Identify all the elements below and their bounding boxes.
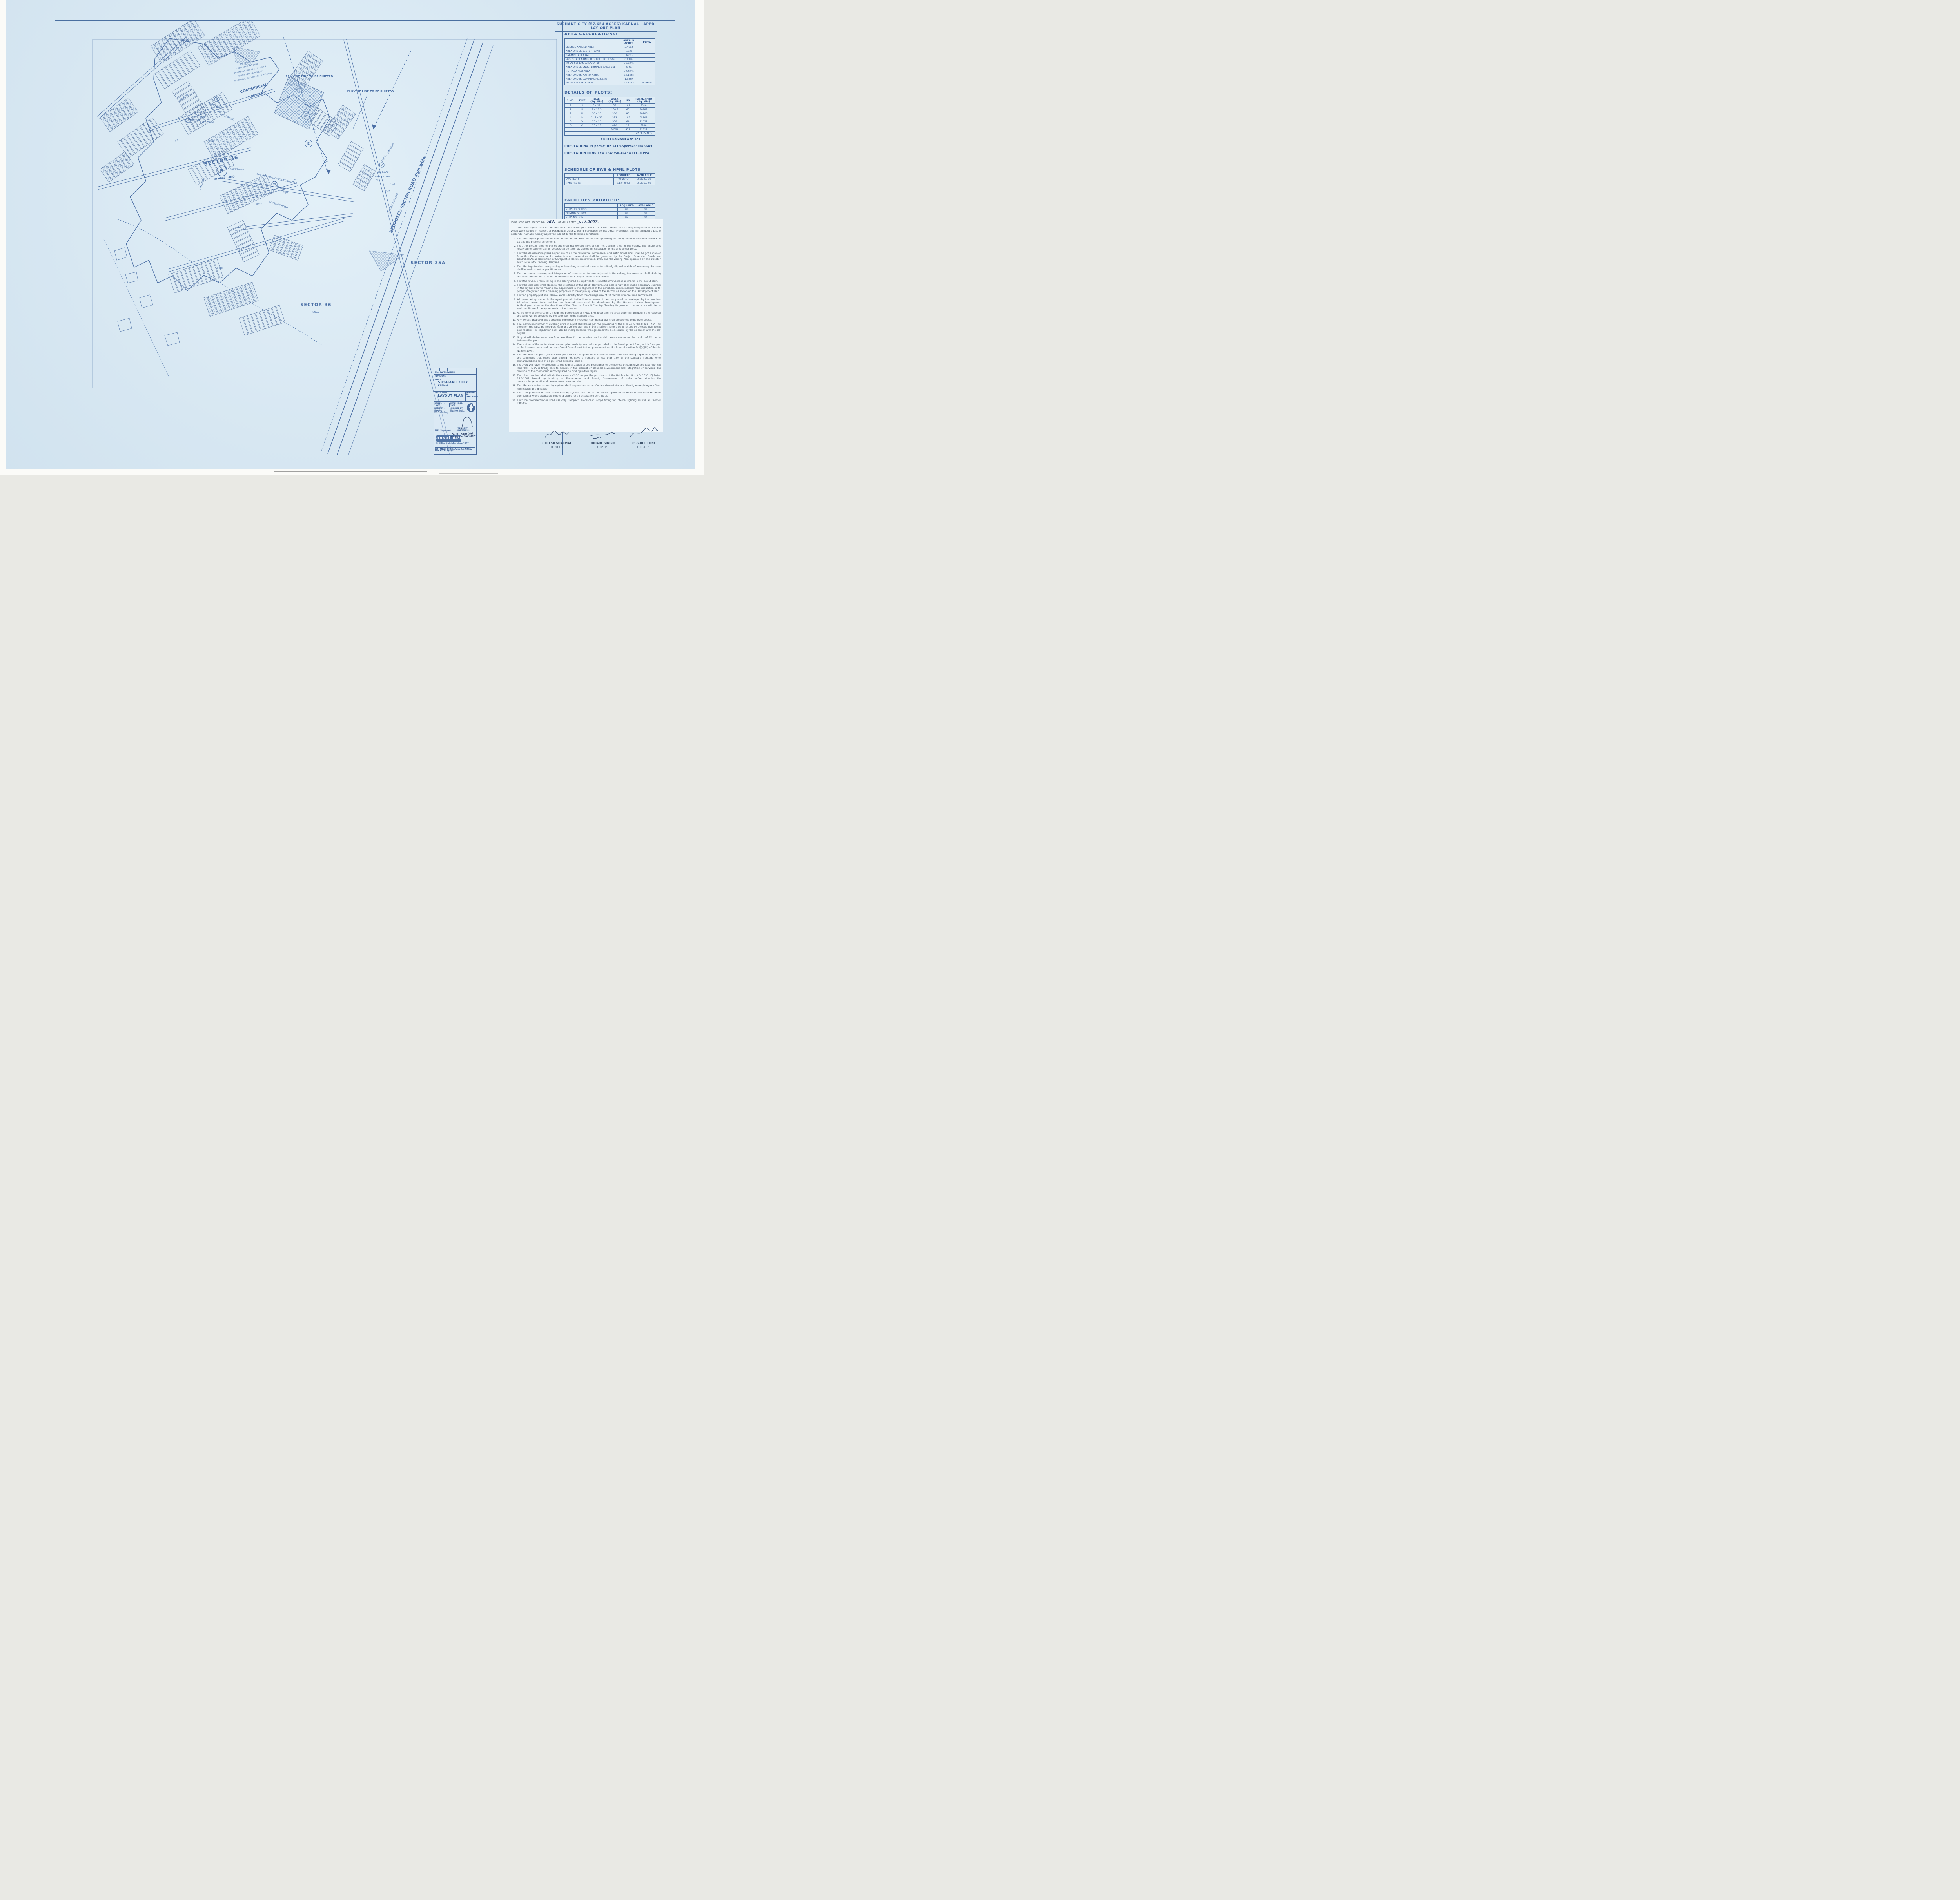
signatory-name: (S.S.DHILLON) <box>620 441 667 445</box>
table-row: EWS PLOTS90(20%)102(22.56%) <box>565 178 655 181</box>
table-cell: 1.639 <box>619 49 639 53</box>
plot-blocks <box>97 21 452 454</box>
table-cell <box>639 49 655 53</box>
table-cell: 253 <box>606 116 624 120</box>
licence-number-handwritten: 264. <box>546 220 555 225</box>
table-cell: 49.92% <box>639 81 655 85</box>
licence-date-handwritten: 3-12-2007. <box>577 220 599 225</box>
table-cell <box>639 57 655 61</box>
condition-item: That the rain water harvesting system sh… <box>517 384 661 391</box>
table-cell: BALANCE AREA (A) <box>565 53 619 57</box>
map-label: 8629 <box>209 140 214 143</box>
table-cell <box>639 65 655 69</box>
col-header: SIZE (Sq. Mts) <box>588 97 606 104</box>
map-label: 1.98 ACS <box>247 92 264 100</box>
table-cell: 01 <box>618 212 636 216</box>
signature-scribble <box>458 415 474 431</box>
licence-mid: of 2007 dated <box>558 221 576 224</box>
licence-line: To be read with licence No. 264. of 2007… <box>511 220 661 225</box>
table-cell: 1 <box>565 104 577 108</box>
table-cell <box>639 69 655 73</box>
table-cell: 11.5 x 22 <box>588 116 606 120</box>
table-row: TOTAL SALEABLE AREA25.175249.92% <box>565 81 655 85</box>
approval-conditions: To be read with licence No. 264. of 2007… <box>509 219 663 432</box>
table-cell: 5 <box>565 120 577 123</box>
col-header: TOTAL AREA (Sq. Mts) <box>632 97 655 104</box>
drawing-no-label: DRAWING NO. <box>465 392 476 396</box>
map-label: U.D. <box>174 138 180 143</box>
col-header: TYPE <box>577 97 588 104</box>
table-cell: 166.5 <box>606 108 624 112</box>
area-calculations-title: AREA CALCULATIONS: <box>564 32 655 36</box>
map-label: SECTOR-36 <box>300 302 332 307</box>
table-cell: 50.4245 <box>619 69 639 73</box>
scan-artifact <box>274 471 427 472</box>
table-row: 50% OF AREA UNDER G. BLT.,ETC. 1.6390.81… <box>565 57 655 61</box>
map-label: F <box>220 167 224 174</box>
col-header: S.NO. <box>565 97 577 104</box>
table-cell: TOTAL SCHEME AREA (A+B) <box>565 61 619 65</box>
table-cell <box>624 132 632 136</box>
map-label: SECTOR-36 <box>203 154 239 167</box>
map-label: 8612 <box>312 310 319 314</box>
table-cell: 90(20%) <box>614 178 633 181</box>
map-label: E <box>307 142 310 146</box>
signature-scribble <box>628 426 659 440</box>
authorised-signatory-stamp: N. R. SEHGAL Authorised Signatory <box>447 432 479 439</box>
map-label: 8/2 <box>376 179 380 181</box>
map-label: II <box>187 119 189 122</box>
dealt-by-sub: (ARCHITECT & URBAN PLANNER) <box>434 411 449 414</box>
col-header <box>565 39 619 45</box>
table-cell: 19800 <box>632 112 655 116</box>
ews-npnl-title: SCHEDULE OF EWS & NPNL PLOTS <box>564 168 655 172</box>
table-row: 5V13 x 263386421632 <box>565 120 655 123</box>
table-row: 3III10 x 202009919800 <box>565 112 655 116</box>
condition-item: All green belts provided in the layout p… <box>517 298 661 311</box>
table-cell: 25.1752 <box>619 81 639 85</box>
col-header <box>565 174 614 178</box>
col-header: PERC. <box>639 39 655 45</box>
map-label: VI <box>273 183 276 186</box>
table-cell: 165(36.50%) <box>633 181 655 185</box>
condition-item: At the time of demarcation, if required … <box>517 312 661 318</box>
condition-item: No plot will derive an access from less … <box>517 336 661 343</box>
ews-npnl-table: REQUIRED AVAILABLE EWS PLOTS90(20%)102(2… <box>564 173 655 185</box>
company-address: 115, ANSAL BHAWAN, 16-K.G.MARG, NEW DELH… <box>435 447 475 452</box>
table-cell: 66 <box>624 108 632 112</box>
signatory-title: CTP(Hr.) <box>579 446 626 449</box>
table-cell <box>588 132 606 136</box>
logo-tagline: Building lifestyles since 1967 <box>436 442 469 445</box>
table-cell: 55 <box>606 104 624 108</box>
condition-item: That you will have no objection to the r… <box>517 364 661 373</box>
revenue-rasta <box>118 219 321 345</box>
map-label: 12M ROAD <box>199 178 205 190</box>
scale-value: SCALE - 1 : 1000 <box>434 403 450 407</box>
table-cell: 23.1885 <box>619 73 639 77</box>
table-cell: V <box>577 120 588 123</box>
table-cell: 7980 <box>632 123 655 127</box>
signature-scribble <box>589 430 617 440</box>
table-cell <box>565 128 577 132</box>
table-cell: 200 <box>606 112 624 116</box>
map-label: 8622 <box>256 203 262 206</box>
table-cell <box>606 132 624 136</box>
table-cell <box>577 128 588 132</box>
table-cell: 102 <box>624 116 632 120</box>
table-cell: 452 <box>624 128 632 132</box>
project-city: KARNAL <box>434 384 476 387</box>
table-cell: 91817 <box>632 128 655 132</box>
condition-item: That no property/plot shall derive acces… <box>517 294 661 297</box>
population-density-line: POPULATION DENSITY= 5643/50.4245=111.91P… <box>564 151 656 155</box>
table-cell <box>639 77 655 81</box>
conditions-intro: That this layout plan for an area of 57.… <box>511 227 661 236</box>
table-row: TOTAL SCHEME AREA (A+B)56.8345 <box>565 61 655 65</box>
map-label: 8502 <box>238 136 243 138</box>
drawing-no: SANC./KAR/1 <box>465 396 476 398</box>
table-cell: AREA UNDER SECTOR ROAD <box>565 49 619 53</box>
sheet-title: LAYOUT PLAN <box>434 394 465 397</box>
map-label: 8630 <box>227 142 232 144</box>
map-label: V <box>381 163 383 167</box>
col-header: REQUIRED <box>618 204 636 208</box>
table-row: PRIMARY SCHOOL0101 <box>565 212 655 216</box>
condition-item: That this layout plan shall be read in c… <box>517 237 661 244</box>
signatory-title: DTCP(Hr.) <box>620 446 667 449</box>
map-label: TEMP. ENTRANCE <box>374 176 393 178</box>
map-label: 15M ROAD <box>200 120 214 123</box>
col-header: NO <box>624 97 632 104</box>
table-cell: II <box>577 108 588 112</box>
layout-plan-map: INCLUDING:-2 ATM- 12 SQ MTS EACH2 BEAUTY… <box>55 21 562 455</box>
table-cell: 22.6885 ACS <box>632 132 655 136</box>
area-calculations-table: AREA IN ACRES PERC. LICENCE APPLIED AREA… <box>564 38 655 85</box>
table-cell: 10989 <box>632 108 655 112</box>
table-cell: NPNL PLOTS <box>565 181 614 185</box>
table-cell: 13 x 26 <box>588 120 606 123</box>
table-row: AREA UNDER UNDETERMINED (U.D.) USE6.41 <box>565 65 655 69</box>
conditions-list: That this layout plan shall be read in c… <box>511 237 661 405</box>
table-cell <box>577 132 588 136</box>
condition-item: That the plotted area of the colony shal… <box>517 245 661 251</box>
table-cell: 102(22.56%) <box>633 178 655 181</box>
table-cell: AREA UNDER PLOTS/ N.HM. <box>565 73 619 77</box>
map-label: 6 NOS. <box>381 154 387 162</box>
map-label: 8610 <box>217 267 223 270</box>
scan-artifact <box>439 473 498 474</box>
table-cell: AREA UNDER COMMERCIAL 3.93% <box>565 77 619 81</box>
map-label: 15M ROAD <box>221 113 235 121</box>
table-cell: 4 <box>565 116 577 120</box>
sgm-label: SGM (Sanctions) <box>435 430 451 431</box>
table-row: NURSERY SCHOOL0101 <box>565 208 655 212</box>
table-cell <box>639 53 655 57</box>
svg-text:N: N <box>473 404 475 407</box>
table-cell: 01 <box>618 208 636 212</box>
table-cell: 19 <box>624 123 632 127</box>
table-cell: NURSING HOME <box>565 216 618 219</box>
date-value: DATE: 22-11-2007 <box>450 403 465 407</box>
table-row: AREA UNDER COMMERCIAL 3.93%1.9867 <box>565 77 655 81</box>
table-cell: 1.9867 <box>619 77 639 81</box>
table-row: LICENCE APPLIED AREA57.654 <box>565 45 655 49</box>
table-cell: 64 <box>624 120 632 123</box>
signature-ctp: (DHARE SINGH) CTP(Hr.) <box>579 430 626 449</box>
condition-item: The maximum number of dwelling units in … <box>517 323 661 335</box>
condition-item: The portion of the sector/development pl… <box>517 343 661 353</box>
table-cell: 102 <box>624 104 632 108</box>
table-row: BALANCE AREA (A)56.015 <box>565 53 655 57</box>
table-cell: 02 <box>636 216 655 219</box>
existing-features <box>102 235 180 376</box>
map-label: 8631 <box>217 111 222 113</box>
checked-by-sub: (GM (SANCTIONS)) <box>450 411 465 412</box>
table-cell: 3 <box>565 112 577 116</box>
table-cell <box>639 61 655 65</box>
signatory-title: DTP(HQ) <box>531 446 582 449</box>
licence-prefix: To be read with licence No. <box>511 221 546 224</box>
condition-item: That the demarcation plans as per site o… <box>517 252 661 265</box>
title-block: SNo. DATE REVISION REVISIONS PROJECT SUS… <box>434 368 477 455</box>
table-cell: NURSERY SCHOOL <box>565 208 618 212</box>
population-line: POPULATION= (9 pers.x102)+(13.5persx350)… <box>564 144 656 148</box>
table-cell <box>639 73 655 77</box>
table-cell: 25806 <box>632 116 655 120</box>
map-label: U.D. <box>325 159 330 164</box>
map-label: 24/2 <box>312 129 316 131</box>
table-cell: I <box>577 104 588 108</box>
table-cell <box>588 128 606 132</box>
table-cell: PRIMARY SCHOOL <box>565 212 618 216</box>
map-label: 12M SERVICEROAD <box>387 192 399 214</box>
condition-item: That the colonizer shall abide by the di… <box>517 284 661 293</box>
table-cell: 5 x 11 <box>588 104 606 108</box>
col-header: AVAILABLE <box>633 174 655 178</box>
condition-item: That the high-tension lines passing in t… <box>517 265 661 272</box>
table-cell: 01 <box>636 212 655 216</box>
survey-boundary <box>93 39 557 388</box>
col-header <box>565 204 618 208</box>
table-cell: 57.654 <box>619 45 639 49</box>
table-cell: IV <box>577 116 588 120</box>
map-label: III <box>216 98 218 101</box>
table-row: NPNL PLOTS113 (25%)165(36.50%) <box>565 181 655 185</box>
map-label: 11 KV HT LINE TO BE SHIFTED <box>346 89 394 93</box>
facilities-title: FACILITIES PROVIDED: <box>564 198 655 203</box>
table-cell: 21632 <box>632 120 655 123</box>
map-label: 12M WIDE ROAD <box>268 200 289 209</box>
map-label: 15/1 <box>390 183 395 186</box>
table-row: TOTAL45291817 <box>565 128 655 132</box>
table-cell: LICENCE APPLIED AREA <box>565 45 619 49</box>
signatory-name: (HITESH SHARMA) <box>531 441 582 445</box>
nursing-home-note: 2 NURSING HOME 0.50 ACS. <box>601 138 641 141</box>
scanned-layout-plan-page: SUSHANT CITY (57.654 ACRES) KARNAL - APP… <box>0 0 704 475</box>
table-cell: 56.8345 <box>619 61 639 65</box>
table-row: 4IV11.5 x 2225310225806 <box>565 116 655 120</box>
signature-dtcp: (S.S.DHILLON) DTCP(Hr.) <box>620 426 667 449</box>
signature-dtp: (HITESH SHARMA) DTP(HQ) <box>531 430 582 449</box>
table-row: 22.6885 ACS <box>565 132 655 136</box>
table-cell: 420 <box>606 123 624 127</box>
revision-header-row: SNo. DATE REVISION <box>434 371 476 375</box>
details-of-plots-table: S.NO. TYPE SIZE (Sq. Mts) AREA (Sq. Mts)… <box>564 97 655 136</box>
table-cell: 15 x 28 <box>588 123 606 127</box>
map-label: 8625/1 <box>230 168 238 171</box>
table-row: 1I5 x 11551025610 <box>565 104 655 108</box>
table-cell: 0.8195 <box>619 57 639 61</box>
table-cell <box>565 132 577 136</box>
details-of-plots-title: DETAILS OF PLOTS: <box>564 91 655 95</box>
table-row: 2II9 x 18.5166.56610989 <box>565 108 655 112</box>
table-row: NET PLANNED AREA50.4245 <box>565 69 655 73</box>
north-arrow-icon: N <box>466 402 476 413</box>
map-label: 18M ROAD <box>376 171 389 174</box>
col-header: AVAILABLE <box>636 204 655 208</box>
col-header: REQUIRED <box>614 174 633 178</box>
map-label: SECTOR-35A <box>410 260 445 265</box>
table-cell: 01 <box>636 208 655 212</box>
signatory-name: (DHARE SINGH) <box>579 441 626 445</box>
condition-item: That the coloniser/owner shall use only … <box>517 399 661 405</box>
table-row: NURSING HOME0202 <box>565 216 655 219</box>
condition-item: That the revenue rasta falling in the co… <box>517 280 661 283</box>
table-cell: 50% OF AREA UNDER G. BLT.,ETC. 1.639 <box>565 57 619 61</box>
table-row: AREA UNDER SECTOR ROAD1.639 <box>565 49 655 53</box>
table-cell: VI <box>577 123 588 127</box>
map-label: PROPOSED SECTOR ROAD 45m wide <box>388 156 427 234</box>
revisions-label: REVISIONS <box>434 375 476 378</box>
condition-item: That the odd size plots (except EWS plot… <box>517 354 661 363</box>
table-cell <box>639 45 655 49</box>
map-label: 12M ROAD <box>178 93 190 102</box>
project-name: SUSHANT CITY <box>434 381 476 384</box>
col-header: AREA IN ACRES <box>619 39 639 45</box>
map-label: 8632 <box>200 116 205 118</box>
table-cell: 6.41 <box>619 65 639 69</box>
table-cell: III <box>577 112 588 116</box>
table-cell: 113 (25%) <box>614 181 633 185</box>
table-cell: 6 <box>565 123 577 127</box>
table-cell: 9 x 18.5 <box>588 108 606 112</box>
table-cell: NET PLANNED AREA <box>565 69 619 73</box>
map-label: 8524 <box>238 169 244 171</box>
table-cell: 338 <box>606 120 624 123</box>
map-label: 15/2 <box>385 190 390 193</box>
table-row: 6VI15 x 28420197980 <box>565 123 655 127</box>
signature-scribble <box>543 430 570 440</box>
table-cell: AREA UNDER UNDETERMINED (U.D.) USE <box>565 65 619 69</box>
table-cell: 02 <box>618 216 636 219</box>
table-cell: 99 <box>624 112 632 116</box>
table-cell: EWS PLOTS <box>565 178 614 181</box>
table-cell: 10 x 20 <box>588 112 606 116</box>
table-cell: 2 <box>565 108 577 112</box>
col-header: AREA (Sq. Mts) <box>606 97 624 104</box>
table-cell: TOTAL SALEABLE AREA <box>565 81 619 85</box>
condition-item: That the provision of solar water heatin… <box>517 392 661 398</box>
table-cell: TOTAL <box>606 128 624 132</box>
map-label: 12M ROAD <box>387 143 395 154</box>
condition-item: That for proper planning and integration… <box>517 272 661 279</box>
map-label: 23 NOS. <box>191 119 200 121</box>
table-row: AREA UNDER PLOTS/ N.HM.23.1885 <box>565 73 655 77</box>
condition-item: Any excess area over and above the permi… <box>517 319 661 322</box>
table-cell: 5610 <box>632 104 655 108</box>
condition-item: That the coloniser shall obtain the clea… <box>517 374 661 384</box>
table-cell: 56.015 <box>619 53 639 57</box>
map-label: 11 KV HT LINE TO BE SHIFTED <box>285 74 333 78</box>
